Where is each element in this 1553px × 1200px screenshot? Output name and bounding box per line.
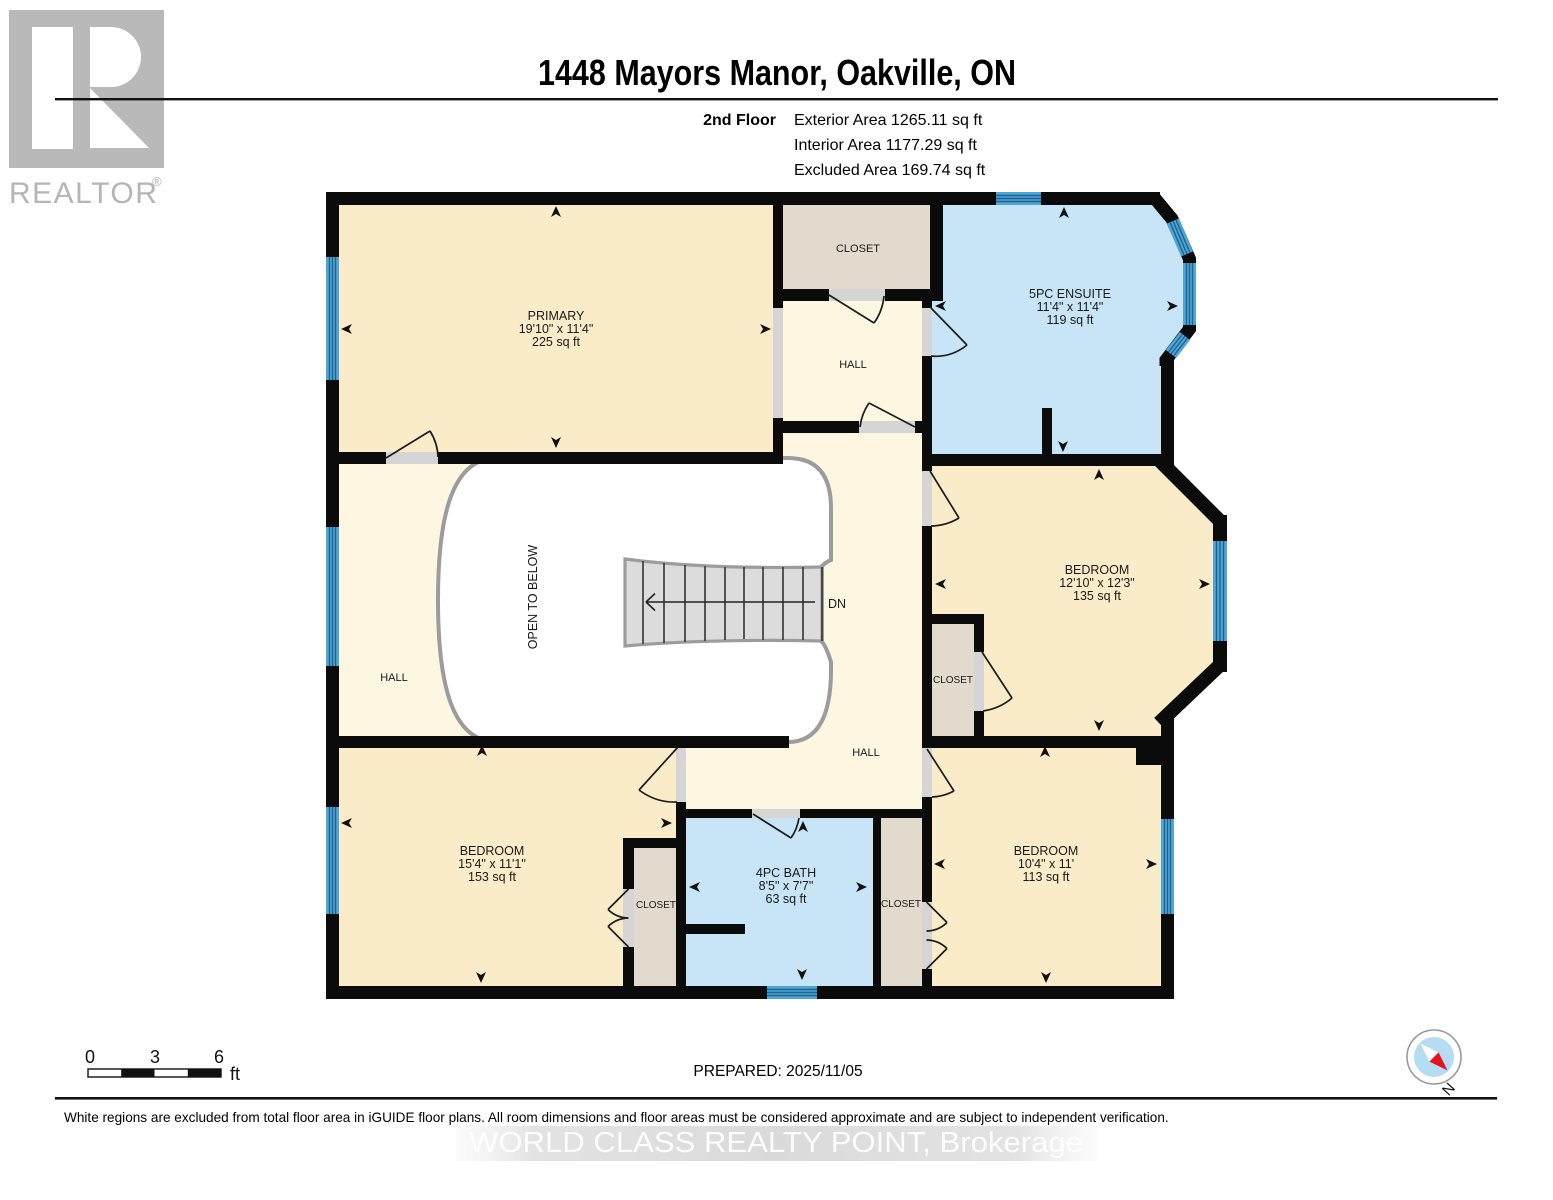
svg-text:113 sq ft: 113 sq ft xyxy=(1022,870,1070,884)
svg-text:CLOSET: CLOSET xyxy=(881,899,921,910)
svg-text:DN: DN xyxy=(828,597,846,611)
svg-text:2nd Floor: 2nd Floor xyxy=(703,112,776,129)
svg-text:63 sq ft: 63 sq ft xyxy=(766,892,808,906)
svg-text:REALTOR: REALTOR xyxy=(9,177,158,210)
svg-text:White regions are excluded fro: White regions are excluded from total fl… xyxy=(64,1110,1169,1125)
svg-text:12'10" x 12'3": 12'10" x 12'3" xyxy=(1059,576,1135,590)
svg-text:CLOSET: CLOSET xyxy=(836,243,880,255)
svg-text:119 sq ft: 119 sq ft xyxy=(1046,313,1094,327)
svg-text:OPEN TO BELOW: OPEN TO BELOW xyxy=(526,545,540,650)
svg-text:Interior Area 1177.29 sq ft: Interior Area 1177.29 sq ft xyxy=(794,137,977,154)
svg-text:HALL: HALL xyxy=(380,672,408,684)
svg-text:10'4" x 11': 10'4" x 11' xyxy=(1018,857,1074,871)
svg-text:HALL: HALL xyxy=(852,747,880,759)
svg-text:19'10" x 11'4": 19'10" x 11'4" xyxy=(519,322,594,336)
svg-text:11'4" x 11'4": 11'4" x 11'4" xyxy=(1037,300,1104,314)
svg-text:5PC ENSUITE: 5PC ENSUITE xyxy=(1029,287,1111,301)
svg-text:BEDROOM: BEDROOM xyxy=(1014,844,1079,858)
svg-text:ft: ft xyxy=(230,1064,240,1084)
svg-text:4PC BATH: 4PC BATH xyxy=(756,866,816,880)
svg-text:0: 0 xyxy=(85,1047,95,1067)
svg-text:PRIMARY: PRIMARY xyxy=(528,309,585,323)
svg-text:WORLD CLASS REALTY POINT, Brok: WORLD CLASS REALTY POINT, Brokerage xyxy=(469,1127,1083,1159)
svg-text:15'4" x 11'1": 15'4" x 11'1" xyxy=(458,857,526,871)
svg-text:1448 Mayors Manor, Oakville, O: 1448 Mayors Manor, Oakville, ON xyxy=(538,52,1016,93)
svg-text:3: 3 xyxy=(150,1047,160,1067)
svg-text:153 sq ft: 153 sq ft xyxy=(468,870,516,884)
svg-text:CLOSET: CLOSET xyxy=(636,900,676,911)
svg-text:BEDROOM: BEDROOM xyxy=(1065,563,1130,577)
svg-text:Excluded Area 169.74 sq ft: Excluded Area 169.74 sq ft xyxy=(794,162,986,179)
svg-text:CLOSET: CLOSET xyxy=(933,675,973,686)
svg-text:HALL: HALL xyxy=(839,359,867,371)
svg-text:8'5" x 7'7": 8'5" x 7'7" xyxy=(759,879,814,893)
svg-text:Exterior Area 1265.11 sq ft: Exterior Area 1265.11 sq ft xyxy=(794,112,983,129)
svg-text:®: ® xyxy=(152,174,162,189)
svg-text:225 sq ft: 225 sq ft xyxy=(532,335,580,349)
svg-text:BEDROOM: BEDROOM xyxy=(460,844,525,858)
svg-text:135 sq ft: 135 sq ft xyxy=(1073,589,1121,603)
svg-text:6: 6 xyxy=(214,1047,224,1067)
svg-text:PREPARED: 2025/11/05: PREPARED: 2025/11/05 xyxy=(693,1063,862,1080)
